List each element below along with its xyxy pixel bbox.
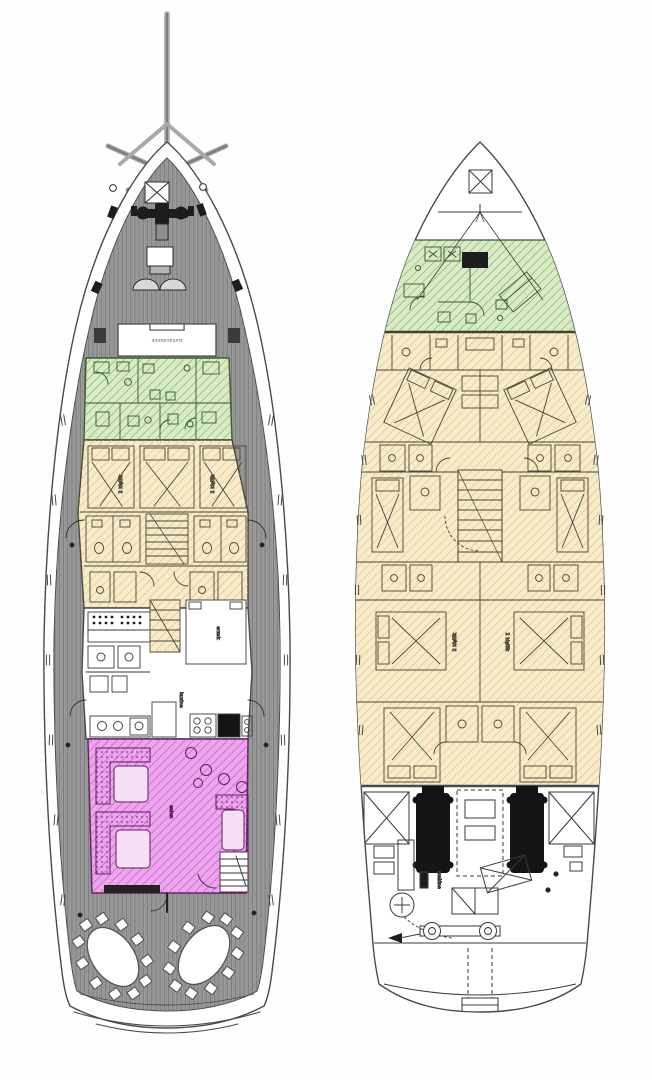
hawse-starboard [200, 184, 207, 191]
storage-label: erzak [215, 626, 221, 640]
cabin-label: 2 kişilik [118, 474, 124, 493]
engine-starboard [507, 786, 548, 873]
deck-plan-diagram: kumandanlık [0, 0, 652, 1080]
salon-label: salon [168, 806, 174, 819]
main-deck-boat: kumandanlık [44, 14, 290, 1033]
engine-port [413, 786, 454, 873]
stairs-down [150, 600, 180, 652]
hawse-port [110, 185, 117, 192]
cabin-label: 2 kişilik [504, 633, 510, 652]
galley-label: kuzine [178, 692, 184, 708]
wheelhouse-label: kumandanlık [151, 337, 182, 343]
cabin-label: 2 kişilik [210, 474, 216, 493]
crew-quarters-main [84, 358, 232, 440]
engine-label: makine [436, 871, 442, 889]
fore-seat-box [147, 247, 173, 266]
guest-cabins-main: 2 kişilik 2 kişilik [78, 440, 248, 608]
salon-area: salon [88, 739, 248, 893]
sofa-group [96, 812, 150, 874]
deck-winch-starboard [228, 328, 240, 343]
deck-plan-canvas: kumandanlık [0, 0, 652, 1080]
deck-winch-port [94, 328, 106, 343]
cabin-label: 2 kişilik [452, 632, 458, 651]
sofa-group [96, 748, 150, 804]
galley-area: erzak kuzine [82, 600, 252, 739]
lower-deck-boat: 2 kişilik 2 kişilik [350, 142, 610, 1022]
oven [218, 714, 240, 737]
salon-step [104, 885, 160, 893]
